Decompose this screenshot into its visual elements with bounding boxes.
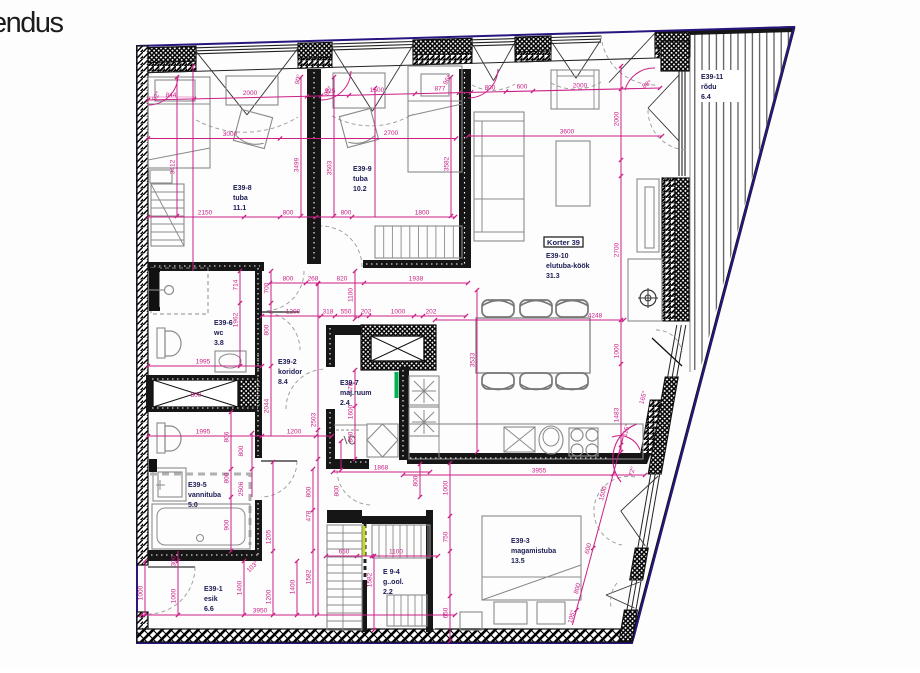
svg-text:2000: 2000 — [614, 111, 621, 126]
svg-text:E39-7: E39-7 — [340, 380, 359, 387]
svg-text:3503: 3503 — [327, 160, 334, 175]
svg-text:5.0: 5.0 — [188, 502, 198, 509]
svg-text:1000: 1000 — [614, 343, 621, 358]
svg-text:E 9-4: E 9-4 — [383, 569, 400, 576]
svg-text:3533: 3533 — [470, 352, 477, 367]
svg-text:2044: 2044 — [264, 398, 271, 413]
svg-text:1868: 1868 — [374, 465, 389, 472]
svg-text:3600: 3600 — [560, 129, 575, 136]
svg-text:2.2: 2.2 — [383, 589, 393, 596]
svg-text:1200: 1200 — [286, 309, 301, 316]
svg-text:elutuba-köök: elutuba-köök — [546, 263, 590, 270]
svg-text:E39-3: E39-3 — [511, 538, 530, 545]
svg-text:E39-6: E39-6 — [214, 320, 233, 327]
svg-text:3499: 3499 — [294, 157, 301, 172]
svg-text:magamistuba: magamistuba — [511, 548, 556, 555]
svg-text:Korter 39: Korter 39 — [547, 238, 580, 247]
svg-text:3950: 3950 — [253, 608, 268, 615]
svg-text:1962: 1962 — [233, 312, 240, 327]
svg-text:800: 800 — [264, 324, 271, 335]
svg-text:1200: 1200 — [266, 589, 273, 604]
svg-text:1200: 1200 — [287, 429, 302, 436]
svg-text:1938: 1938 — [409, 276, 424, 283]
svg-text:650: 650 — [339, 549, 350, 556]
svg-text:2700: 2700 — [614, 242, 621, 257]
svg-text:1205: 1205 — [266, 529, 273, 544]
svg-text:800: 800 — [283, 210, 294, 217]
svg-text:koridor: koridor — [278, 369, 302, 376]
svg-text:202: 202 — [426, 309, 437, 316]
svg-text:800: 800 — [341, 210, 352, 217]
svg-text:11.1: 11.1 — [233, 205, 246, 212]
svg-text:vannituba: vannituba — [188, 492, 221, 499]
svg-text:E39-2: E39-2 — [278, 359, 297, 366]
svg-text:3.8: 3.8 — [214, 340, 224, 347]
svg-text:8.4: 8.4 — [278, 379, 288, 386]
svg-text:3000: 3000 — [223, 131, 238, 138]
svg-text:268: 268 — [308, 276, 319, 283]
svg-text:2000: 2000 — [573, 82, 588, 89]
svg-text:478: 478 — [306, 510, 313, 521]
svg-text:650: 650 — [443, 607, 450, 618]
svg-text:E39-1: E39-1 — [204, 586, 223, 593]
svg-text:1800: 1800 — [415, 210, 430, 217]
svg-text:6.6: 6.6 — [204, 606, 214, 613]
svg-text:800: 800 — [334, 485, 341, 496]
svg-text:202: 202 — [361, 309, 372, 316]
svg-text:550: 550 — [341, 309, 352, 316]
svg-text:esik: esik — [204, 596, 218, 603]
svg-text:2.4: 2.4 — [340, 400, 350, 407]
svg-text:877: 877 — [435, 86, 446, 93]
svg-text:tuba: tuba — [233, 195, 248, 202]
svg-text:endus: endus — [0, 7, 64, 39]
svg-text:1582: 1582 — [306, 569, 313, 584]
svg-text:800: 800 — [348, 431, 355, 442]
svg-text:1100: 1100 — [389, 549, 403, 556]
svg-text:wc: wc — [213, 330, 223, 337]
svg-text:E39-9: E39-9 — [353, 166, 372, 173]
svg-text:800: 800 — [306, 486, 313, 497]
svg-text:3412: 3412 — [170, 159, 177, 174]
svg-text:maj.ruum: maj.ruum — [340, 390, 372, 397]
svg-text:1483: 1483 — [614, 407, 621, 422]
svg-text:820: 820 — [337, 276, 348, 283]
svg-text:E39-10: E39-10 — [546, 253, 569, 260]
svg-text:1100: 1100 — [348, 288, 355, 302]
svg-text:800: 800 — [413, 475, 420, 486]
svg-text:700: 700 — [264, 282, 271, 293]
svg-text:6.4: 6.4 — [701, 94, 711, 101]
svg-text:2503: 2503 — [311, 412, 318, 427]
svg-text:1000: 1000 — [443, 480, 450, 495]
svg-text:E39-5: E39-5 — [188, 482, 207, 489]
svg-text:13.5: 13.5 — [511, 558, 525, 565]
svg-text:E39-8: E39-8 — [233, 185, 252, 192]
svg-text:1000: 1000 — [138, 585, 145, 600]
svg-text:4248: 4248 — [588, 313, 603, 320]
svg-text:2506: 2506 — [238, 481, 245, 496]
svg-text:10.2: 10.2 — [353, 186, 367, 193]
svg-text:600: 600 — [517, 84, 528, 91]
svg-text:tuba: tuba — [353, 176, 368, 183]
svg-text:1995: 1995 — [196, 359, 211, 366]
svg-text:806: 806 — [224, 431, 231, 442]
svg-text:2150: 2150 — [198, 210, 213, 217]
svg-text:714: 714 — [233, 279, 240, 290]
svg-text:E39-11: E39-11 — [701, 74, 723, 81]
svg-text:rõdu: rõdu — [701, 84, 717, 91]
svg-text:1400: 1400 — [290, 579, 297, 594]
svg-text:1500: 1500 — [370, 87, 385, 94]
svg-text:1000: 1000 — [391, 309, 406, 316]
svg-text:31.3: 31.3 — [546, 273, 560, 280]
svg-text:3955: 3955 — [532, 468, 547, 475]
svg-text:800: 800 — [238, 445, 245, 456]
svg-text:900: 900 — [224, 519, 231, 530]
svg-text:1995: 1995 — [196, 429, 211, 436]
svg-text:1000: 1000 — [171, 588, 178, 603]
svg-text:800: 800 — [283, 276, 294, 283]
svg-text:750: 750 — [443, 531, 450, 542]
svg-text:318: 318 — [323, 309, 334, 316]
svg-text:800: 800 — [224, 472, 231, 483]
svg-text:300: 300 — [171, 555, 178, 566]
svg-text:800: 800 — [191, 392, 202, 399]
svg-text:3582: 3582 — [444, 156, 451, 171]
svg-text:1400: 1400 — [237, 580, 244, 595]
svg-text:1582: 1582 — [367, 572, 374, 587]
svg-text:g..ool.: g..ool. — [383, 579, 404, 586]
svg-text:2000: 2000 — [243, 90, 258, 97]
svg-text:2700: 2700 — [384, 130, 399, 137]
